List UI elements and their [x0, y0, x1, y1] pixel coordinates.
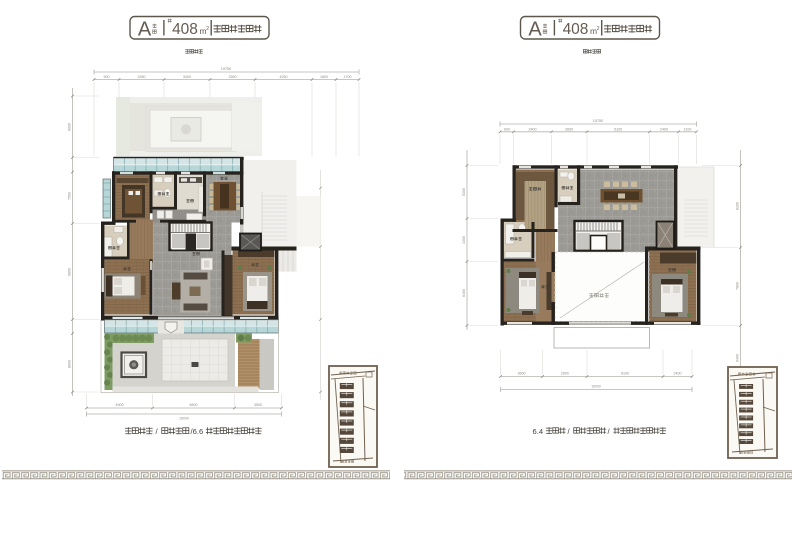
svg-text:15000: 15000 — [179, 417, 189, 421]
svg-text:6400: 6400 — [736, 354, 740, 362]
svg-text:3350: 3350 — [138, 75, 146, 79]
svg-text:/6.6: /6.6 — [191, 427, 204, 436]
svg-text:4250: 4250 — [280, 75, 288, 79]
svg-text:8200: 8200 — [736, 202, 740, 210]
svg-text:15750: 15750 — [593, 119, 604, 123]
svg-text:9800: 9800 — [68, 268, 72, 276]
svg-text:900: 900 — [504, 127, 510, 131]
svg-text:2400: 2400 — [529, 127, 537, 131]
svg-text:2600: 2600 — [565, 127, 573, 131]
svg-text:408: 408 — [563, 21, 589, 38]
svg-text:2: 2 — [206, 26, 209, 32]
svg-text:19750: 19750 — [221, 67, 232, 71]
svg-text:2: 2 — [597, 26, 600, 32]
svg-text:5100: 5100 — [614, 127, 622, 131]
svg-text:3500: 3500 — [254, 403, 262, 407]
svg-text:6100: 6100 — [621, 372, 629, 376]
svg-text:6600: 6600 — [190, 403, 198, 407]
svg-text:900: 900 — [104, 75, 110, 79]
svg-text:3600: 3600 — [518, 372, 526, 376]
svg-text:1700: 1700 — [344, 75, 352, 79]
svg-text:6000: 6000 — [68, 123, 72, 131]
svg-text:4900: 4900 — [116, 403, 124, 407]
svg-text:2400: 2400 — [674, 372, 682, 376]
svg-text:8000: 8000 — [68, 360, 72, 368]
svg-text:2900: 2900 — [561, 372, 569, 376]
svg-text:4300: 4300 — [462, 236, 466, 244]
svg-text:408: 408 — [172, 21, 198, 38]
svg-text:6.4: 6.4 — [533, 427, 544, 436]
svg-text:6400: 6400 — [462, 289, 466, 297]
svg-text:A: A — [528, 19, 542, 41]
svg-text:7800: 7800 — [736, 282, 740, 290]
svg-text:2400: 2400 — [660, 127, 668, 131]
svg-text:3350: 3350 — [229, 75, 237, 79]
svg-text:15000: 15000 — [591, 385, 601, 389]
svg-text:1800: 1800 — [320, 75, 328, 79]
svg-text:1100: 1100 — [684, 127, 692, 131]
svg-text:5300: 5300 — [462, 188, 466, 196]
svg-text:3400: 3400 — [183, 75, 191, 79]
svg-text:A: A — [138, 19, 152, 41]
svg-text:7500: 7500 — [68, 192, 72, 200]
